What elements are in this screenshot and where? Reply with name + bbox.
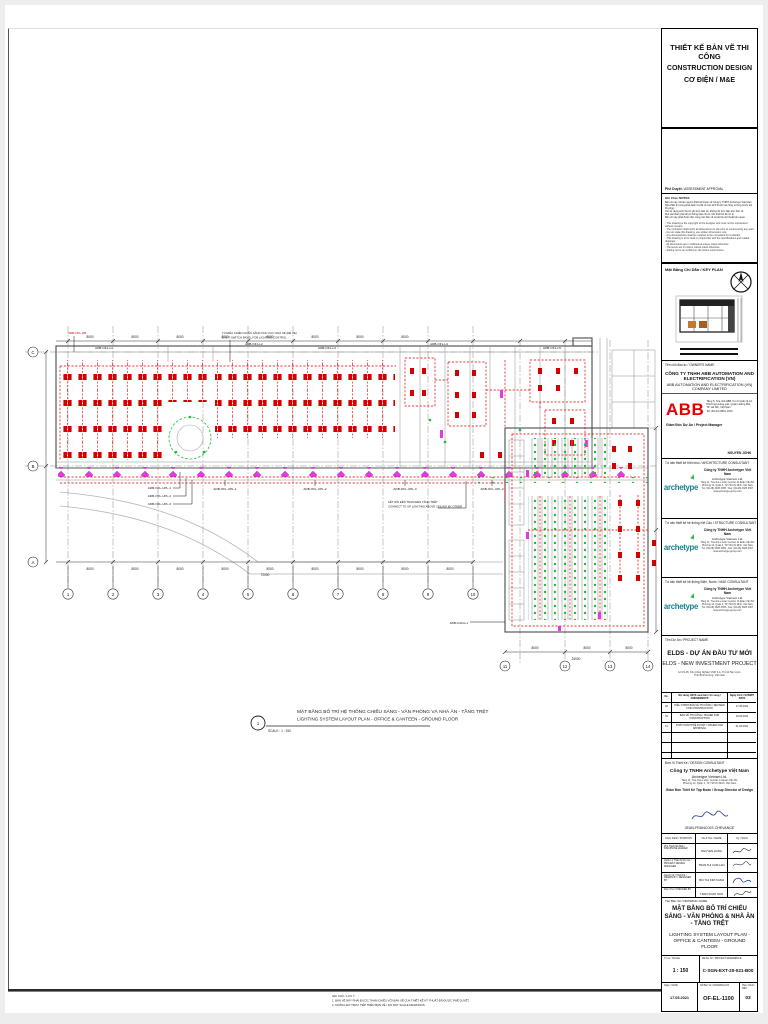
svg-text:ADB-OFL-UPL-2: ADB-OFL-UPL-2	[303, 487, 326, 491]
project-ref-value: C-SGN-EXT-20-021-B00	[700, 968, 756, 973]
svg-text:1: 1	[257, 721, 260, 726]
titleblock-header: THIẾT KẾ BẢN VẼ THI CÔNG CONSTRUCTION DE…	[662, 29, 757, 129]
consultant-label: Tư vấn thiết kế Kiến trúc / ARCHITECTURE…	[662, 459, 757, 465]
title-block: THIẾT KẾ BẢN VẼ THI CÔNG CONSTRUCTION DE…	[661, 28, 758, 1012]
consultant-info: Công ty TNHH Archetype Việt Nam Archetyp…	[700, 467, 757, 495]
approval-label: Phê Duyệt / ASSESSMENT APPROVAL	[665, 187, 723, 191]
rev-empty	[672, 733, 728, 743]
rev-header-date: Ngày trình / SUBMIT DATE	[728, 693, 756, 703]
svg-text:8000: 8000	[176, 567, 183, 571]
svg-text:B: B	[32, 464, 35, 469]
project-name-section: Tên Dự Án / PROJECT NAME ELDS - DỰ ÁN ĐẦ…	[662, 636, 757, 693]
signoff-row: Quản Lý Thiết Kế Dự Án / PROJECT DESIGN …	[662, 859, 757, 874]
svg-text:72000: 72000	[261, 573, 270, 577]
sheet-bottom-notes: GHI CHÚ / LƯU Ý: 1. BẢN VẼ NÀY PHẢI ĐƯỢC…	[332, 993, 470, 1007]
revision-cell: Hiệu Chỉnh / REV. 03	[740, 983, 756, 1012]
svg-text:ADB-OFL-UPL-2: ADB-OFL-UPL-2	[148, 494, 171, 498]
project-name-en: ELDS - NEW INVESTMENT PROJECT	[662, 661, 757, 667]
project-label: Tên Dự Án / PROJECT NAME	[662, 636, 757, 642]
svg-text:ADB-OFL-UPL-1: ADB-OFL-UPL-1	[213, 487, 236, 491]
svg-text:ADB-OFL-UPL-3: ADB-OFL-UPL-3	[393, 487, 416, 491]
owner-company-en: ABB AUTOMATION AND ELECTRIFICATION (VN) …	[662, 383, 757, 394]
revision-value: 03	[740, 996, 756, 1001]
owner-role: Giám Đốc Dự Án / Project Manager	[666, 423, 757, 427]
note-line: Bản vẽ này phải được đọc cùng các bản vẽ…	[665, 216, 755, 219]
archetype-logo: archetype	[662, 596, 700, 614]
svg-text:8000: 8000	[311, 567, 318, 571]
svg-text:2. KHÔNG ĐO TRỰC TIẾP TRÊN BẢN: 2. KHÔNG ĐO TRỰC TIẾP TRÊN BẢN VẼ / DO N…	[332, 1002, 426, 1007]
svg-text:8000: 8000	[531, 646, 538, 650]
rev-no: 03	[662, 703, 672, 713]
approval-section: Phê Duyệt / ASSESSMENT APPROVAL	[662, 129, 757, 194]
rev-date: 17.05.2021	[728, 703, 756, 713]
signature	[728, 844, 756, 858]
consultant-info: Công ty TNHH Archetype Việt Nam Archetyp…	[700, 527, 757, 555]
svg-text:ADB-OFL-UPL-4: ADB-OFL-UPL-4	[480, 487, 503, 491]
owner-label: Tên chủ đầu tư / OWNER'S NAME	[662, 361, 757, 367]
rev-empty	[728, 743, 756, 753]
svg-text:ADB-OFL-L2: ADB-OFL-L2	[245, 342, 263, 346]
architecture-consultant-section: Tư vấn thiết kế Kiến trúc / ARCHITECTURE…	[662, 459, 757, 519]
titleblock-footer: Tỷ Lệ / SCALE 1 : 150 Mã Dự Án / PROJECT…	[662, 956, 757, 1013]
drawing-name-section: Tên Bản Vẽ / DRAWING NAME MẶT BẰNG BỐ TR…	[662, 898, 757, 956]
leaf-icon	[690, 473, 695, 479]
structure-consultant-section: Tư vấn thiết kế hệ thống Kết Cấu / STRUC…	[662, 519, 757, 578]
svg-text:8000: 8000	[86, 567, 93, 571]
rev-no: 01	[662, 723, 672, 733]
project-address: Lô CN-05, Khu Công Nghiệp VSIP II-A, Thị…	[662, 671, 757, 677]
view-title: MẶT BẰNG BỐ TRÍ HỆ THỐNG CHIẾU SÁNG - VĂ…	[251, 707, 489, 733]
notes-label: Ghi Chú / NOTES	[665, 196, 757, 200]
svg-text:13: 13	[608, 664, 613, 669]
signoff-table: Phụ Trách Bộ Môn / DISCIPLINE LEADER NGU…	[662, 844, 757, 898]
svg-text:MẶT BẰNG BỐ TRÍ HỆ THỐNG CHIẾU: MẶT BẰNG BỐ TRÍ HỆ THỐNG CHIẾU SÁNG - VĂ…	[297, 707, 489, 715]
svg-text:8000: 8000	[401, 567, 408, 571]
svg-text:8000: 8000	[356, 567, 363, 571]
svg-text:8000: 8000	[311, 335, 318, 339]
svg-text:TỦ ĐIỀU KHIỂN CHIẾU SÁNG KHU V: TỦ ĐIỀU KHIỂN CHIẾU SÁNG KHU VỰC NHÀ XE …	[222, 330, 297, 335]
rev-header-no: No.	[662, 693, 672, 703]
office-light-fixtures	[60, 360, 396, 460]
firm-role: Giám Đốc Thiết Kế Tập Đoàn / Group Direc…	[662, 788, 757, 792]
design-firm-section: Đơn Vị Thiết Kế / DESIGN CONSULTANT Công…	[662, 759, 757, 834]
abb-logo: ABB	[666, 400, 704, 420]
svg-text:ADB-OFL-L1: ADB-OFL-L1	[95, 346, 113, 350]
svg-text:12: 12	[563, 664, 568, 669]
north-arrow-icon	[729, 270, 753, 294]
signature	[728, 888, 756, 899]
rev-desc: BẢN VẼ THI CÔNG / ISSUED FOR CONSTRUCTIO…	[672, 713, 728, 723]
svg-text:8000: 8000	[221, 567, 228, 571]
svg-text:ADB-CAN-L1: ADB-CAN-L1	[450, 621, 469, 625]
firm-signature	[690, 809, 730, 823]
svg-text:ADB-OFL-L3: ADB-OFL-L3	[318, 346, 336, 350]
courtyard-circle	[169, 416, 211, 459]
svg-text:LIGHT SWITCH PANEL FOR LIGHTIN: LIGHT SWITCH PANEL FOR LIGHTING CONTROL	[222, 336, 287, 340]
keyplan-section: Mặt Bằng Chỉ Dẫn / KEY PLAN	[662, 264, 757, 361]
signoff-row: Kiểm Tra / CHECKED BY TRAN XUAN SON	[662, 888, 757, 899]
svg-text:10: 10	[471, 592, 476, 597]
owner-company-vi: CÔNG TY TNHH ABB AUTOMATION AND ELECTRIF…	[662, 371, 757, 381]
svg-text:11: 11	[503, 664, 508, 669]
owner-section: Tên chủ đầu tư / OWNER'S NAME CÔNG TY TN…	[662, 361, 757, 459]
svg-text:8000: 8000	[356, 335, 363, 339]
rev-date: 01.03.2021	[728, 723, 756, 733]
drawing-name-vi: MẶT BẰNG BỐ TRÍ CHIẾU SÁNG - VĂN PHÒNG &…	[662, 906, 757, 929]
svg-text:ADB-OFL-L4: ADB-OFL-L4	[430, 342, 448, 346]
archetype-logo: archetype	[662, 477, 700, 495]
signoff-header: Họ & Tên / NAME	[696, 834, 728, 843]
signature	[728, 873, 756, 887]
drawing-name-label: Tên Bản Vẽ / DRAWING NAME	[662, 898, 757, 903]
note-line: - Setting out to be verified on site bef…	[665, 249, 755, 252]
firm-address: Phường 12, Quận 4, TP. Hồ Chí Minh, Việt…	[662, 782, 757, 785]
svg-text:KẾT NỐI ĐẾN TRẠM ĐÈN TẦNG TRỆT: KẾT NỐI ĐẾN TRẠM ĐÈN TẦNG TRỆT	[388, 499, 438, 504]
signoff-row: Phụ Trách Bộ Môn / DISCIPLINE LEADER NGU…	[662, 844, 757, 859]
signoff-header: Chức Danh / POSITION	[662, 834, 696, 843]
design-phase-title: THIẾT KẾ BẢN VẼ THI CÔNG	[662, 43, 757, 61]
keyplan-thumbnail	[674, 292, 746, 344]
floor-plan-canvas: 8000 8000 8000 8000 8000 8000 8000 8000 …	[0, 0, 768, 1024]
svg-text:ADB-OFL-UPL-3: ADB-OFL-UPL-3	[148, 502, 171, 506]
svg-text:8000: 8000	[401, 335, 408, 339]
signoff-row: Người Vẽ / Thiết Kế / DRAWN BY / DESIGNE…	[662, 873, 757, 888]
consultant-info: Công ty TNHH Archetype Việt Nam Archetyp…	[700, 586, 757, 614]
svg-text:GHI CHÚ / LƯU Ý:: GHI CHÚ / LƯU Ý:	[332, 993, 356, 998]
archetype-logo: archetype	[662, 537, 700, 555]
owner-signature-name: NGUYEN JOHN	[728, 451, 751, 455]
rev-no: 02	[662, 713, 672, 723]
leaf-icon	[690, 533, 695, 539]
signature	[728, 859, 756, 873]
mne-consultant-section: Tư vấn thiết kế hệ thống Điện, Nước / M&…	[662, 578, 757, 636]
keyplan-scale-bars	[680, 345, 738, 355]
discipline-title: CƠ ĐIỆN / M&E	[662, 77, 757, 84]
rev-empty	[662, 733, 672, 743]
drawing-name-en: LIGHTING SYSTEM LAYOUT PLAN - OFFICE & C…	[662, 933, 757, 951]
svg-text:LIGHTING SYSTEM LAYOUT PLAN -: LIGHTING SYSTEM LAYOUT PLAN - OFFICE & C…	[297, 717, 459, 722]
drawing-number-cell: Số Bản Vẽ / DRAWING NO. OF-EL-1100	[698, 983, 740, 1012]
notes-section: Ghi Chú / NOTES Bản vẽ này và bản quyền …	[662, 194, 757, 264]
svg-text:8000: 8000	[176, 335, 183, 339]
revision-table: No. Nội dung HSTK xuất bản / bổ sung / A…	[662, 693, 757, 759]
drawing-number-value: OF-EL-1100	[698, 996, 739, 1002]
signoff-header-row: Chức Danh / POSITION Họ & Tên / NAME Ký …	[662, 834, 757, 844]
firm-label: Đơn Vị Thiết Kế / DESIGN CONSULTANT	[662, 759, 757, 765]
scale-value: 1 : 150	[662, 968, 699, 974]
rev-desc: HIỆU CHỈNH BẢN VẼ THI CÔNG / REVISED FOR…	[672, 703, 728, 713]
svg-text:8000: 8000	[446, 567, 453, 571]
svg-text:8000: 8000	[583, 646, 590, 650]
svg-text:ADB-OFL-UPL-1: ADB-OFL-UPL-1	[148, 486, 171, 490]
rev-desc: PHÁT HÀNH PHÊ DUYỆT / ISSUED FOR APPROVA…	[672, 723, 728, 733]
svg-text:8000: 8000	[131, 567, 138, 571]
svg-text:A: A	[32, 560, 35, 565]
svg-text:8000: 8000	[86, 335, 93, 339]
svg-text:SCALE : 1 : 150: SCALE : 1 : 150	[268, 729, 291, 733]
consultant-label: Tư vấn thiết kế hệ thống Kết Cấu / STRUC…	[662, 519, 757, 525]
date-cell: Ngày / DATE 17.05.2021	[662, 983, 698, 1012]
firm-signature-name: JEAN-FRANCOIS CHEVANCE	[662, 826, 757, 830]
scale-cell: Tỷ Lệ / SCALE 1 : 150	[662, 956, 700, 982]
project-name-vi: ELDS - DỰ ÁN ĐẦU TƯ MỚI	[662, 650, 757, 657]
svg-text:ADB-OFL-L5: ADB-OFL-L5	[543, 346, 561, 350]
owner-address: Tầng 5, Tòa nhà ABB, Km 9 Quốc lộ 1A, Ph…	[706, 400, 753, 420]
rev-empty	[672, 743, 728, 753]
leaf-icon	[690, 592, 695, 598]
svg-text:8000: 8000	[266, 567, 273, 571]
svg-text:24000: 24000	[572, 657, 581, 661]
design-phase-subtitle: CONSTRUCTION DESIGN	[662, 65, 757, 72]
date-value: 17.05.2021	[662, 996, 697, 1000]
firm-company-vi: Công ty TNHH Archetype Việt Nam	[662, 769, 757, 774]
svg-text:ADB-OFL-DB: ADB-OFL-DB	[68, 331, 86, 335]
svg-text:C: C	[31, 350, 34, 355]
rev-empty	[662, 743, 672, 753]
canteen-area	[509, 434, 656, 631]
rev-empty	[728, 733, 756, 743]
svg-text:8000: 8000	[625, 646, 632, 650]
rev-header-desc: Nội dung HSTK xuất bản / bổ sung / AMEND…	[672, 693, 728, 703]
svg-text:8000: 8000	[131, 335, 138, 339]
signoff-header: Ký / SIGN	[728, 834, 756, 843]
rev-date: 19.03.2021	[728, 713, 756, 723]
consultant-label: Tư vấn thiết kế hệ thống Điện, Nước / M&…	[662, 578, 757, 584]
project-ref-cell: Mã Dự Án / PROJECT REFERENCE C-SGN-EXT-2…	[700, 956, 756, 982]
svg-text:1. BẢN VẼ NÀY PHẢI ĐƯỢC THAM C: 1. BẢN VẼ NÀY PHẢI ĐƯỢC THAM CHIẾU VỚI B…	[332, 998, 470, 1003]
svg-text:14: 14	[646, 664, 651, 669]
